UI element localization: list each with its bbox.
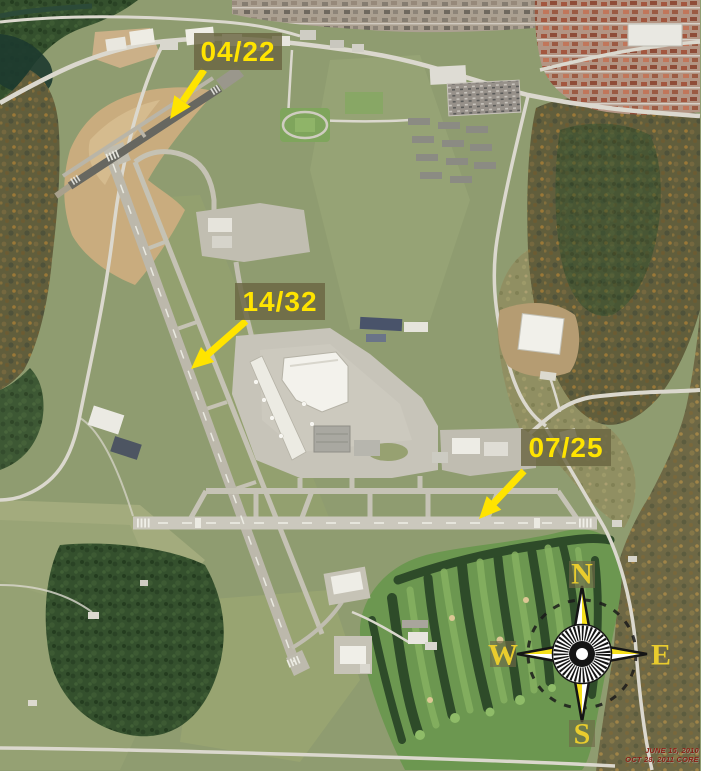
date-line-2: OCT 28, 2011 CORE: [625, 755, 699, 764]
compass-west-label: W: [488, 639, 518, 672]
runway-label-04-22: 04/22: [194, 33, 282, 70]
north-apron: [196, 203, 310, 262]
compass-rose: N E S W: [487, 559, 677, 749]
runway-label-07-25: 07/25: [521, 429, 611, 466]
screenshot-root: 04/22 14/32 07/25 N E S: [0, 0, 701, 771]
runway-label-14-32: 14/32: [235, 283, 325, 320]
compass-hub: [553, 625, 612, 684]
imagery-date-stamp: JUNE 15, 2010 OCT 28, 2011 CORE: [625, 746, 699, 764]
compass-east-label: E: [651, 639, 671, 672]
compass-north-label: N: [571, 559, 593, 591]
date-line-1: JUNE 15, 2010: [625, 746, 699, 755]
compass-south-label: S: [574, 718, 591, 750]
